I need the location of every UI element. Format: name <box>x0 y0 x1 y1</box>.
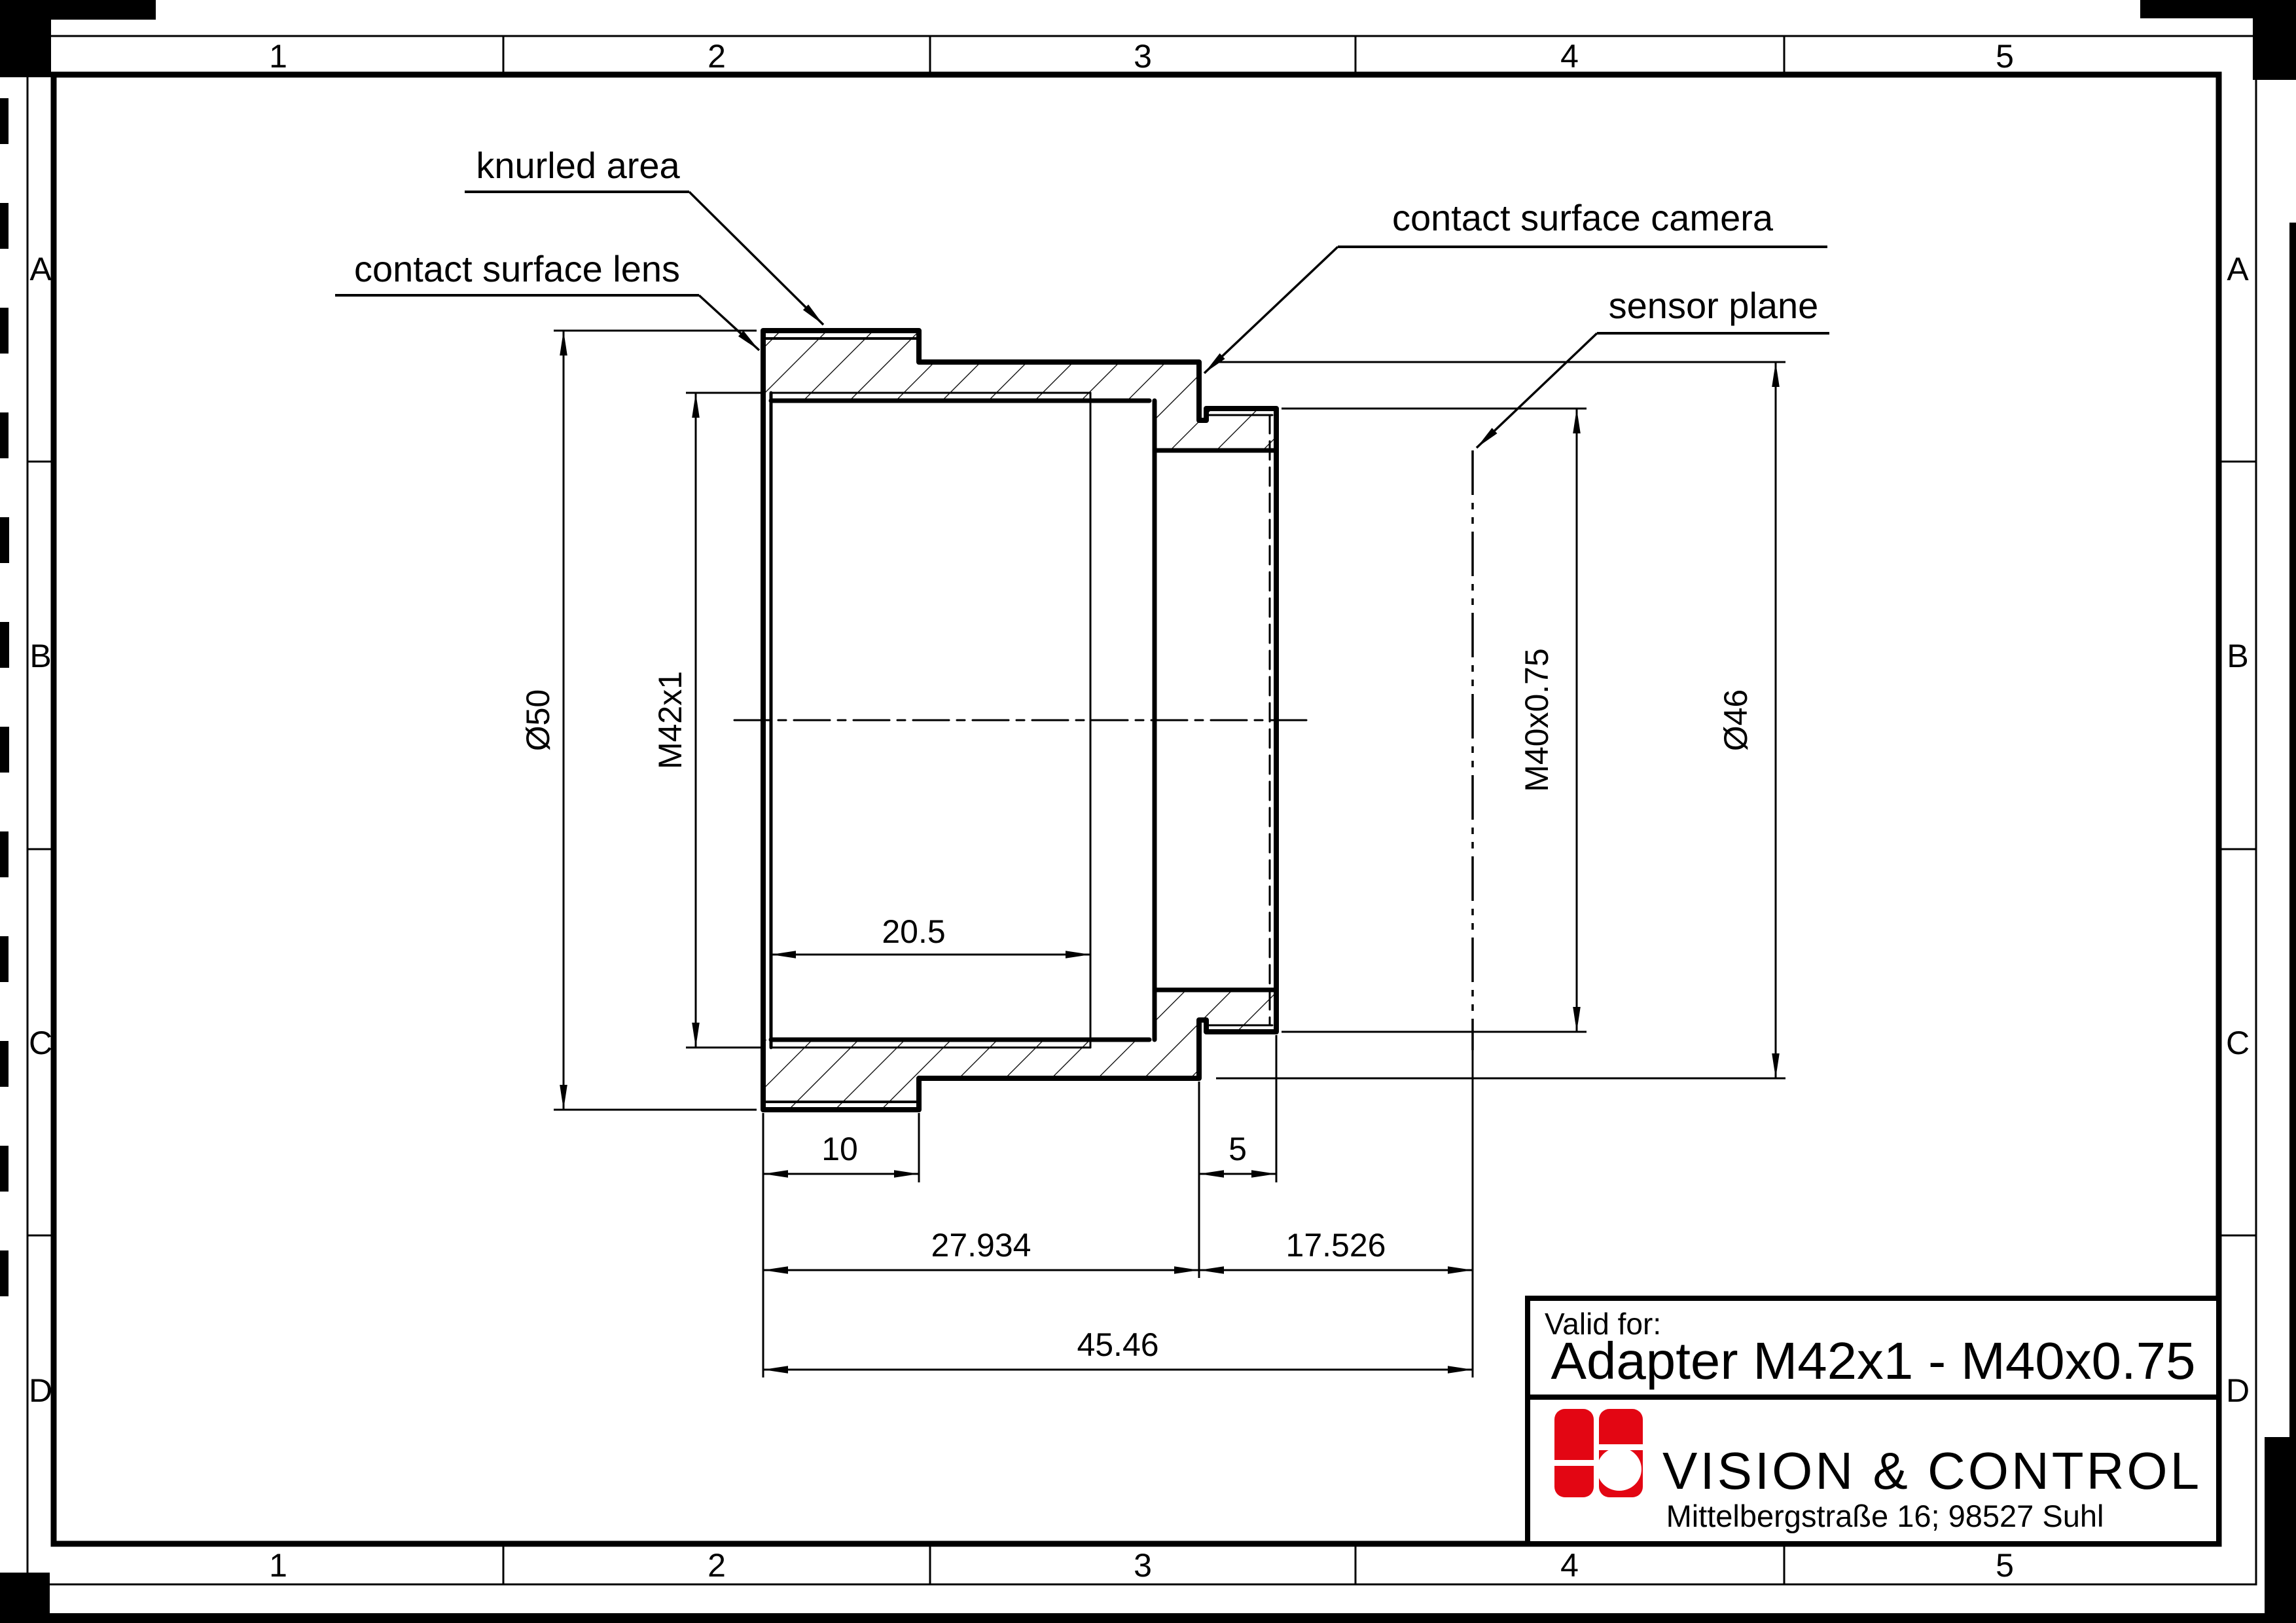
grid-col-bottom: 2 <box>708 1547 726 1584</box>
grid-row-right: A <box>2227 251 2249 287</box>
dim-text-camera-flange-to-sensor: 17.526 <box>1286 1227 1386 1264</box>
grid-col-top: 3 <box>1134 38 1152 75</box>
grid-col-top: 5 <box>1996 38 2014 75</box>
grid-row-left: D <box>29 1372 52 1409</box>
grid-col-bottom: 3 <box>1134 1547 1152 1584</box>
label-text-contact-surface-lens: contact surface lens <box>354 248 680 289</box>
label-contact-surface-lens: contact surface lens <box>335 248 759 350</box>
dim-text-front-to-camera-flange: 27.934 <box>931 1227 1031 1264</box>
dimensions <box>554 331 1785 1377</box>
label-text-sensor-plane: sensor plane <box>1609 285 1819 326</box>
label-text-contact-surface-camera: contact surface camera <box>1392 197 1774 238</box>
dim-text-thread-depth: 20.5 <box>882 913 945 950</box>
grid-col-bottom: 1 <box>269 1547 287 1584</box>
part-title: Adapter M42x1 - M40x0.75 <box>1551 1332 2196 1390</box>
grid-col-top: 2 <box>708 38 726 75</box>
dim-text-knurl-diameter: Ø50 <box>520 689 556 752</box>
title-block: Valid for: Adapter M42x1 - M40x0.75 VISI… <box>1528 1298 2219 1544</box>
grid-row-right: C <box>2226 1025 2250 1061</box>
grid-row-right: B <box>2227 638 2248 674</box>
technical-drawing-svg: 1 2 3 4 5 1 2 3 4 5 A B C D A B C D <box>0 0 2296 1623</box>
dim-text-lens-thread: M42x1 <box>652 671 689 769</box>
label-text-knurled-area: knurled area <box>476 145 680 186</box>
grid-col-bottom: 4 <box>1560 1547 1579 1584</box>
grid-col-top: 1 <box>269 38 287 75</box>
dim-text-front-to-sensor: 45.46 <box>1077 1326 1158 1363</box>
company-address: Mittelbergstraße 16; 98527 Suhl <box>1666 1499 2104 1533</box>
part-section-view <box>734 331 1314 1110</box>
dimension-texts: Ø50 M42x1 M40x0.75 Ø46 20.5 10 5 27.934 … <box>520 648 1754 1363</box>
grid-col-top: 4 <box>1560 38 1579 75</box>
grid-row-right: D <box>2226 1372 2250 1409</box>
grid-col-bottom: 5 <box>1996 1547 2014 1584</box>
grid-row-left: C <box>29 1025 52 1061</box>
dim-text-camera-thread-length: 5 <box>1229 1131 1247 1167</box>
dim-text-camera-thread: M40x0.75 <box>1518 648 1555 792</box>
label-knurled-area: knurled area <box>465 145 823 325</box>
drawing-page: 1 2 3 4 5 1 2 3 4 5 A B C D A B C D <box>0 0 2296 1623</box>
dim-text-body-diameter: Ø46 <box>1717 689 1754 752</box>
grid-row-left: A <box>29 251 52 287</box>
dim-text-knurl-width: 10 <box>821 1131 858 1167</box>
grid-row-left: B <box>29 638 51 674</box>
company-name: VISION & CONTROL <box>1662 1442 2202 1500</box>
